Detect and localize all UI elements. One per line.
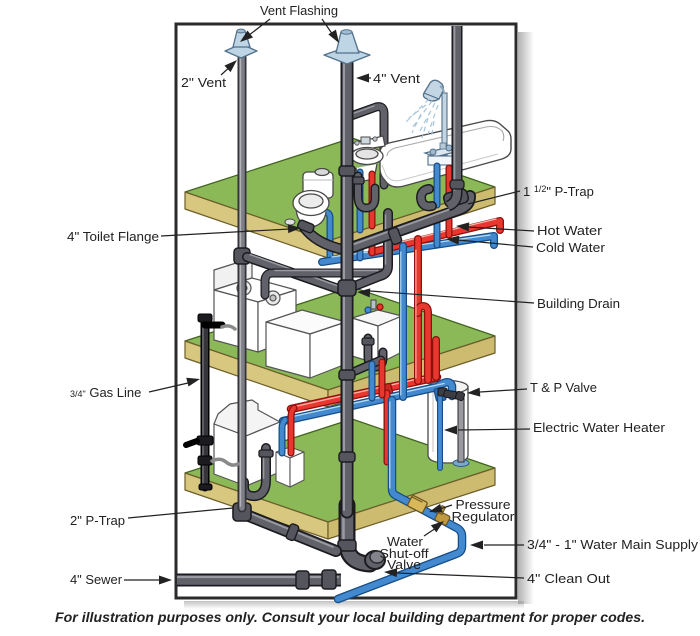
svg-text:Building Drain: Building Drain xyxy=(537,296,620,311)
svg-text:3/4" - 1" Water Main Supply: 3/4" - 1" Water Main Supply xyxy=(527,537,699,552)
svg-text:2" P-Trap: 2" P-Trap xyxy=(70,513,125,528)
svg-text:4" Vent: 4" Vent xyxy=(373,71,420,86)
svg-text:4" Toilet Flange: 4" Toilet Flange xyxy=(67,229,159,244)
svg-text:4" Clean Out: 4" Clean Out xyxy=(527,571,610,586)
svg-text:4" Sewer: 4" Sewer xyxy=(70,572,123,587)
svg-text:Electric Water Heater: Electric Water Heater xyxy=(533,420,666,435)
svg-text:Hot Water: Hot Water xyxy=(537,223,603,238)
svg-text:1 1/2" P-Trap: 1 1/2" P-Trap xyxy=(523,184,594,199)
svg-text:Cold Water: Cold Water xyxy=(536,240,606,255)
svg-text:2" Vent: 2" Vent xyxy=(181,75,226,90)
svg-text:Regulator: Regulator xyxy=(452,509,516,524)
svg-text:For illustration purposes only: For illustration purposes only. Consult … xyxy=(55,610,645,625)
svg-text:Vent Flashing: Vent Flashing xyxy=(260,3,338,18)
svg-text:T & P Valve: T & P Valve xyxy=(530,380,597,395)
